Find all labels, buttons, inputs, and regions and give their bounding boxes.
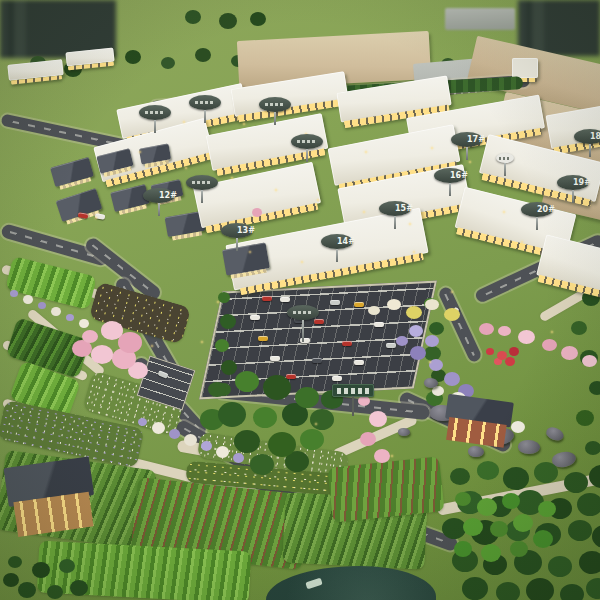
building-sign-label: 14# xyxy=(337,234,355,249)
car xyxy=(250,315,260,320)
rock xyxy=(551,450,578,470)
building-sign-unreadable xyxy=(186,175,218,190)
building-sign-label: 13# xyxy=(237,223,255,238)
retail-building xyxy=(7,59,63,81)
rock xyxy=(424,378,438,388)
brick-house xyxy=(442,394,514,449)
red-flower-patch xyxy=(486,348,494,355)
car xyxy=(330,300,340,305)
area-board-sign xyxy=(332,384,374,397)
car xyxy=(354,360,364,365)
building-sign-13: 13# xyxy=(221,223,253,238)
tree-cluster-center xyxy=(208,382,226,397)
rock xyxy=(468,446,484,457)
building-sign-unreadable xyxy=(139,105,171,120)
building-sign-16: 16# xyxy=(434,168,466,183)
car xyxy=(95,213,106,219)
white-yellow-flower-band xyxy=(368,306,380,315)
pond xyxy=(266,566,436,600)
building-sign-12: 12# xyxy=(143,188,175,203)
building-sign-18: 18# xyxy=(574,129,600,144)
building-sign-label: 12# xyxy=(159,188,177,203)
building-sign-label: 20# xyxy=(537,202,555,217)
building-sign-label: 17# xyxy=(467,132,485,147)
car xyxy=(342,341,352,346)
farmhouse xyxy=(4,456,99,537)
forest-bottom-right xyxy=(450,468,470,485)
rock xyxy=(398,428,410,436)
purple-white-flower-strip xyxy=(138,418,147,426)
village-house xyxy=(50,157,94,187)
rock xyxy=(544,425,565,442)
building-sign-unreadable xyxy=(291,134,323,149)
building-sign-label: 18# xyxy=(590,129,600,144)
car xyxy=(374,322,384,327)
pink-blossom-cluster xyxy=(358,396,370,406)
scale-model-photo: Aerial photo of a miniature master-plan … xyxy=(0,0,600,600)
building-sign-19: 19# xyxy=(557,175,589,190)
purple-white-flower-strip xyxy=(10,290,18,297)
car xyxy=(386,343,396,348)
car xyxy=(312,358,322,363)
car xyxy=(286,374,296,379)
car xyxy=(258,336,268,341)
bright-tree-cluster xyxy=(455,492,471,506)
car xyxy=(262,296,272,301)
pink-blossom-cluster xyxy=(82,330,98,343)
building-sign-15: 15# xyxy=(379,201,411,216)
building-sign-20: 20# xyxy=(521,202,553,217)
car xyxy=(280,297,290,302)
car xyxy=(314,319,324,324)
car xyxy=(298,401,308,407)
tree-cluster-bottom-left xyxy=(8,556,22,568)
small-white-sign xyxy=(496,153,514,163)
garden-plot xyxy=(5,256,97,310)
car xyxy=(270,356,280,361)
car xyxy=(332,376,342,381)
retail-building-13 xyxy=(193,162,321,228)
building-sign-label: 16# xyxy=(450,168,468,183)
rock xyxy=(518,440,540,454)
purple-flower-band xyxy=(396,336,408,346)
building-sign-label: 15# xyxy=(395,201,413,216)
building-sign-14: 14# xyxy=(321,234,353,249)
building-sign-unreadable xyxy=(259,97,291,112)
pink-blossom-tree xyxy=(252,208,262,217)
building-sign-17: 17# xyxy=(451,132,483,147)
parking-sign xyxy=(287,305,319,320)
tree-row xyxy=(218,292,230,303)
small-white-house xyxy=(512,58,538,78)
car xyxy=(354,302,364,307)
building-sign-label: 19# xyxy=(573,175,591,190)
crop-field xyxy=(327,456,444,522)
background-shed xyxy=(445,8,515,30)
tree-row xyxy=(424,298,437,309)
crop-field xyxy=(37,540,251,600)
building-sign-unreadable xyxy=(189,95,221,110)
pink-flower-band xyxy=(498,326,511,336)
